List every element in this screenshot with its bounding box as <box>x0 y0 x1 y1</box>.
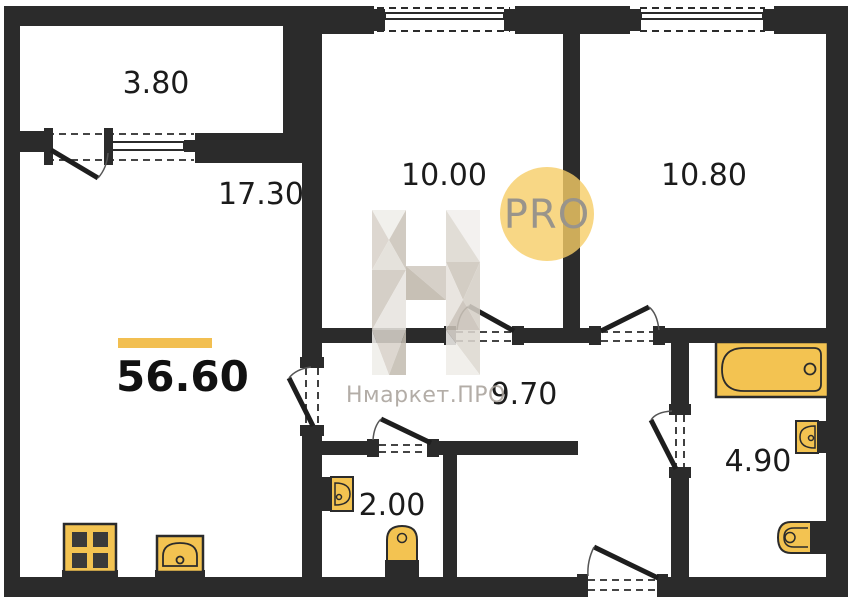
label-balcony-area: 3.80 <box>123 66 190 101</box>
window-bedroom-2 <box>630 8 774 31</box>
wall-top-seg2 <box>515 6 630 34</box>
wc-toilet <box>385 526 419 577</box>
wall-balcony-top <box>4 6 296 26</box>
kitchen-sink <box>155 536 205 579</box>
total-area: 56.60 <box>116 338 249 401</box>
label-bedroom2-area: 10.80 <box>661 158 747 193</box>
label-bedroom1-area: 10.00 <box>401 158 487 193</box>
label-bathroom-area: 4.90 <box>725 444 792 479</box>
wall-wc-top-seg2 <box>439 441 578 455</box>
label-living-area: 17.30 <box>218 177 304 212</box>
bath-washbasin <box>796 421 827 453</box>
watermark-brand-text: Нмаркет.ПРО <box>346 383 506 408</box>
door-wc <box>367 419 439 457</box>
total-area-accent-bar <box>118 338 212 348</box>
wall-bottom-seg2 <box>668 577 848 597</box>
watermark: Нмаркет.ПРО <box>346 210 506 408</box>
window-bedroom-1 <box>374 8 515 31</box>
wall-wc-top-seg1 <box>322 441 367 455</box>
door-entrance <box>577 547 668 597</box>
watermark-h-logo <box>372 210 480 375</box>
floorplan-image: 3.80 17.30 10.00 10.80 9.70 2.00 4.90 56… <box>0 0 852 600</box>
wall-living-divider-lower <box>302 436 322 577</box>
stove <box>62 524 118 579</box>
door-living-room <box>289 357 324 436</box>
wall-left <box>4 6 20 597</box>
wall-hall-top-seg2 <box>524 328 589 343</box>
door-bedroom-2 <box>589 307 665 345</box>
wall-balcony-right <box>283 6 322 133</box>
door-balcony <box>44 128 113 178</box>
bath-toilet <box>778 521 827 554</box>
wall-wc-right <box>443 441 457 577</box>
label-wc-area: 2.00 <box>359 488 426 523</box>
wall-right <box>826 6 848 597</box>
pro-badge-text: PRO <box>504 192 590 238</box>
bathtub <box>716 342 828 397</box>
wall-living-divider-upper <box>302 133 322 357</box>
floorplan-svg: 3.80 17.30 10.00 10.80 9.70 2.00 4.90 56… <box>0 0 852 600</box>
wall-bottom-seg1 <box>4 577 577 597</box>
wall-bath-left-upper <box>671 343 689 404</box>
wc-washbasin <box>322 477 353 511</box>
total-area-value: 56.60 <box>116 352 249 401</box>
wall-parapet-right <box>195 133 303 163</box>
door-bathroom <box>651 404 691 478</box>
pro-badge: PRO <box>500 167 594 261</box>
wall-parapet-left <box>4 131 47 152</box>
window-balcony <box>47 134 195 160</box>
wall-bath-left-lower <box>671 478 689 577</box>
